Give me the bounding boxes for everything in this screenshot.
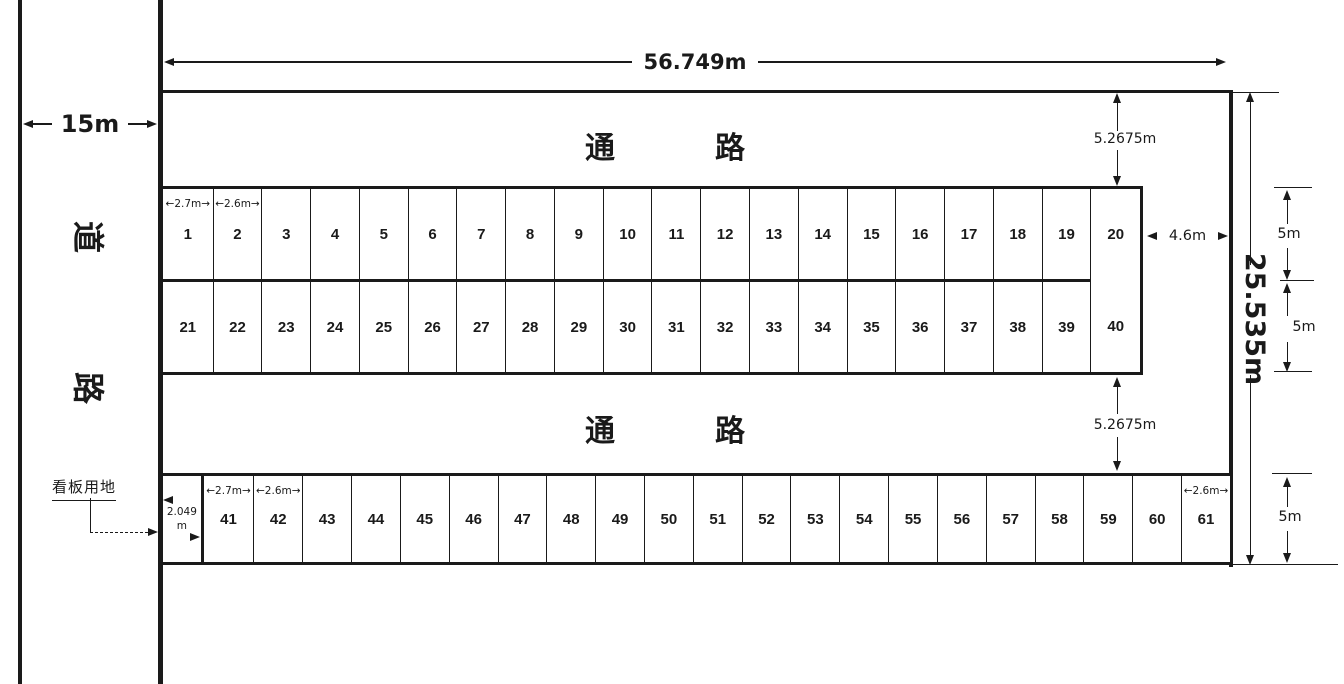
parking-space: 48	[547, 476, 596, 562]
row1-height-value: 5m	[1272, 226, 1306, 242]
space-width-label: ←2.6m→	[1182, 485, 1230, 497]
parking-space: ←2.7m→1	[163, 189, 213, 282]
parking-space: ←2.6m→61	[1182, 476, 1230, 562]
space-number: 47	[514, 511, 531, 528]
parking-space: 56	[938, 476, 987, 562]
parking-space: 50	[645, 476, 694, 562]
space-number: 59	[1100, 511, 1117, 528]
signboard-leader-line	[90, 532, 148, 533]
parking-space: 20	[1091, 189, 1140, 281]
space-number: 58	[1051, 511, 1068, 528]
space-number: 2	[233, 226, 241, 243]
parking-column: 2040	[1091, 189, 1140, 372]
parking-space: 32	[701, 282, 749, 372]
space-number: 51	[709, 511, 726, 528]
arrow-right-icon	[1218, 232, 1228, 240]
space-number: 23	[278, 319, 295, 336]
parking-space: 59	[1084, 476, 1133, 562]
signboard-leader-line	[90, 498, 91, 533]
space-number: 45	[416, 511, 433, 528]
space-number: 52	[758, 511, 775, 528]
parking-column: 424	[311, 189, 360, 372]
parking-space: 54	[840, 476, 889, 562]
parking-space: 29	[555, 282, 603, 372]
parking-space: 38	[994, 282, 1042, 372]
space-number: 20	[1107, 226, 1124, 243]
arrow-left-icon	[23, 120, 33, 128]
parking-space: 47	[499, 476, 548, 562]
space-number: 41	[220, 511, 237, 528]
parking-space: 34	[799, 282, 847, 372]
parking-column: 1333	[750, 189, 799, 372]
parking-column: 525	[360, 189, 409, 372]
space-number: 56	[954, 511, 971, 528]
parking-space: 44	[352, 476, 401, 562]
space-number: 29	[570, 319, 587, 336]
parking-space: 31	[652, 282, 700, 372]
parking-space: 25	[360, 282, 408, 372]
space-number: 28	[522, 319, 539, 336]
space-number: 42	[270, 511, 287, 528]
lot-top-boundary	[160, 90, 1233, 93]
parking-column: 1939	[1043, 189, 1092, 372]
parking-column: 1636	[896, 189, 945, 372]
aisle-top-label: 通 路	[585, 123, 745, 167]
parking-space: 52	[743, 476, 792, 562]
parking-space: 43	[303, 476, 352, 562]
space-number: 46	[465, 511, 482, 528]
arrow-left-icon	[1147, 232, 1157, 240]
parking-space: 60	[1133, 476, 1182, 562]
parking-space: 30	[604, 282, 652, 372]
parking-column: 1232	[701, 189, 750, 372]
arrow-right-icon	[147, 120, 157, 128]
space-number: 54	[856, 511, 873, 528]
parking-space: 15	[848, 189, 896, 282]
parking-column: ←2.6m→222	[214, 189, 263, 372]
parking-space: 22	[214, 282, 262, 372]
parking-column: 626	[409, 189, 458, 372]
space-number: 1	[184, 226, 192, 243]
space-number: 44	[368, 511, 385, 528]
parking-space: 35	[848, 282, 896, 372]
row3-height-value: 5m	[1273, 509, 1307, 525]
space-number: 8	[526, 226, 534, 243]
parking-column: 727	[457, 189, 506, 372]
space-number: 36	[912, 319, 929, 336]
parking-space: 13	[750, 189, 798, 282]
parking-space: 21	[163, 282, 213, 372]
arrow-left-icon	[163, 496, 173, 504]
arrow-down-icon	[1246, 555, 1254, 565]
parking-space: 4	[311, 189, 359, 282]
arrow-right-icon	[190, 533, 200, 541]
parking-space: 40	[1091, 281, 1140, 373]
lot-width-value: 56.749m	[632, 50, 759, 74]
space-number: 38	[1009, 319, 1026, 336]
parking-space: 16	[896, 189, 944, 282]
space-number: 25	[375, 319, 392, 336]
signboard-area-label: 看板用地	[52, 476, 116, 501]
parking-column: 929	[555, 189, 604, 372]
parking-space: 51	[694, 476, 743, 562]
parking-column: 1030	[604, 189, 653, 372]
space-number: 9	[575, 226, 583, 243]
parking-space: 28	[506, 282, 554, 372]
lot-width-dimension: 56.749m	[164, 52, 1226, 72]
space-width-label: ←2.6m→	[254, 485, 302, 497]
space-number: 26	[424, 319, 441, 336]
arrow-down-icon	[1113, 176, 1121, 186]
space-number: 19	[1058, 226, 1075, 243]
road-label-char-2: 路	[64, 364, 112, 412]
lot-height-value: 25.535m	[1238, 244, 1270, 394]
parking-space: 3	[262, 189, 310, 282]
parking-space: 23	[262, 282, 310, 372]
parking-column: 1535	[848, 189, 897, 372]
arrow-right-icon	[148, 528, 158, 536]
space-number: 15	[863, 226, 880, 243]
space-number: 5	[380, 226, 388, 243]
aisle-top-height-value: 5.2675m	[1088, 131, 1162, 147]
space-width-label: ←2.7m→	[204, 485, 254, 497]
road-width-dimension: 15m	[23, 112, 157, 136]
arrow-down-icon	[1113, 461, 1121, 471]
space-number: 13	[766, 226, 783, 243]
space-number: 32	[717, 319, 734, 336]
right-gap-value: 4.6m	[1163, 228, 1212, 244]
arrow-down-icon	[1283, 553, 1291, 563]
parking-column: 1737	[945, 189, 994, 372]
parking-space: 26	[409, 282, 457, 372]
right-gap-dimension: 4.6m	[1147, 228, 1228, 244]
space-number: 4	[331, 226, 339, 243]
space-number: 55	[905, 511, 922, 528]
space-number: 40	[1107, 318, 1124, 335]
space-number: 50	[661, 511, 678, 528]
parking-space: 8	[506, 189, 554, 282]
space-width-label: ←2.6m→	[214, 198, 262, 210]
parking-space: 12	[701, 189, 749, 282]
parking-space: 7	[457, 189, 505, 282]
parking-space: 24	[311, 282, 359, 372]
space-number: 34	[814, 319, 831, 336]
parking-column: 828	[506, 189, 555, 372]
lot-top-tick-extension	[1233, 92, 1279, 93]
parking-space: 37	[945, 282, 993, 372]
space-width-label: ←2.7m→	[163, 198, 213, 210]
parking-space: 46	[450, 476, 499, 562]
parking-space: ←2.7m→41	[204, 476, 255, 562]
parking-row-bottom: 2.049m←2.7m→41←2.6m→42434445464748495051…	[160, 473, 1233, 565]
signboard-width-value: 2.049	[163, 506, 201, 518]
aisle-bottom-label: 通 路	[585, 406, 745, 450]
aisle-bottom-height-value: 5.2675m	[1088, 417, 1162, 433]
space-number: 21	[179, 319, 196, 336]
parking-column: 1131	[652, 189, 701, 372]
parking-space: 45	[401, 476, 450, 562]
space-number: 37	[961, 319, 978, 336]
road-width-value: 15m	[52, 110, 128, 138]
space-number: 33	[766, 319, 783, 336]
parking-space: 53	[791, 476, 840, 562]
parking-space: 27	[457, 282, 505, 372]
parking-space: 36	[896, 282, 944, 372]
arrow-left-icon	[164, 58, 174, 66]
space-number: 14	[814, 226, 831, 243]
parking-column: 323	[262, 189, 311, 372]
parking-column: ←2.7m→121	[163, 189, 214, 372]
space-number: 49	[612, 511, 629, 528]
space-number: 60	[1149, 511, 1166, 528]
space-number: 11	[668, 226, 684, 243]
parking-block-main: ←2.7m→121←2.6m→2223234245256267278289291…	[160, 186, 1143, 375]
space-number: 30	[619, 319, 636, 336]
space-number: 61	[1198, 511, 1215, 528]
space-number: 27	[473, 319, 490, 336]
parking-space: 49	[596, 476, 645, 562]
parking-column: 1838	[994, 189, 1043, 372]
space-number: 12	[717, 226, 734, 243]
space-number: 53	[807, 511, 824, 528]
space-number: 7	[477, 226, 485, 243]
space-number: 3	[282, 226, 290, 243]
space-number: 35	[863, 319, 880, 336]
arrow-right-icon	[1216, 58, 1226, 66]
parking-site-plan-drawing: 15m 道 路 56.749m 通 路 5.2675m ←2.7m→121←2.…	[0, 0, 1344, 684]
parking-space: ←2.6m→2	[214, 189, 262, 282]
space-number: 10	[619, 226, 636, 243]
space-number: 48	[563, 511, 580, 528]
parking-space: 6	[409, 189, 457, 282]
space-number: 31	[668, 319, 685, 336]
parking-space: 18	[994, 189, 1042, 282]
parking-space: 9	[555, 189, 603, 282]
road-left-edge-line	[18, 0, 22, 684]
parking-space: 58	[1036, 476, 1085, 562]
parking-space: ←2.6m→42	[254, 476, 303, 562]
parking-space: 39	[1043, 282, 1091, 372]
space-number: 39	[1058, 319, 1075, 336]
parking-space: 10	[604, 189, 652, 282]
space-number: 43	[319, 511, 336, 528]
space-number: 18	[1009, 226, 1026, 243]
parking-space: 11	[652, 189, 700, 282]
parking-space: 14	[799, 189, 847, 282]
space-number: 22	[229, 319, 246, 336]
space-number: 57	[1002, 511, 1019, 528]
parking-column: 1434	[799, 189, 848, 372]
parking-space: 17	[945, 189, 993, 282]
parking-space: 5	[360, 189, 408, 282]
space-number: 17	[961, 226, 978, 243]
space-number: 24	[327, 319, 344, 336]
parking-space: 33	[750, 282, 798, 372]
arrow-down-icon	[1283, 270, 1291, 280]
row2-height-value: 5m	[1287, 319, 1321, 335]
space-number: 16	[912, 226, 929, 243]
parking-space: 19	[1043, 189, 1091, 282]
parking-space: 57	[987, 476, 1036, 562]
signboard-width-unit: m	[163, 520, 201, 532]
parking-space: 55	[889, 476, 938, 562]
road-label-char-1: 道	[64, 213, 112, 261]
signboard-area-cell: 2.049m	[163, 476, 204, 562]
space-number: 6	[428, 226, 436, 243]
